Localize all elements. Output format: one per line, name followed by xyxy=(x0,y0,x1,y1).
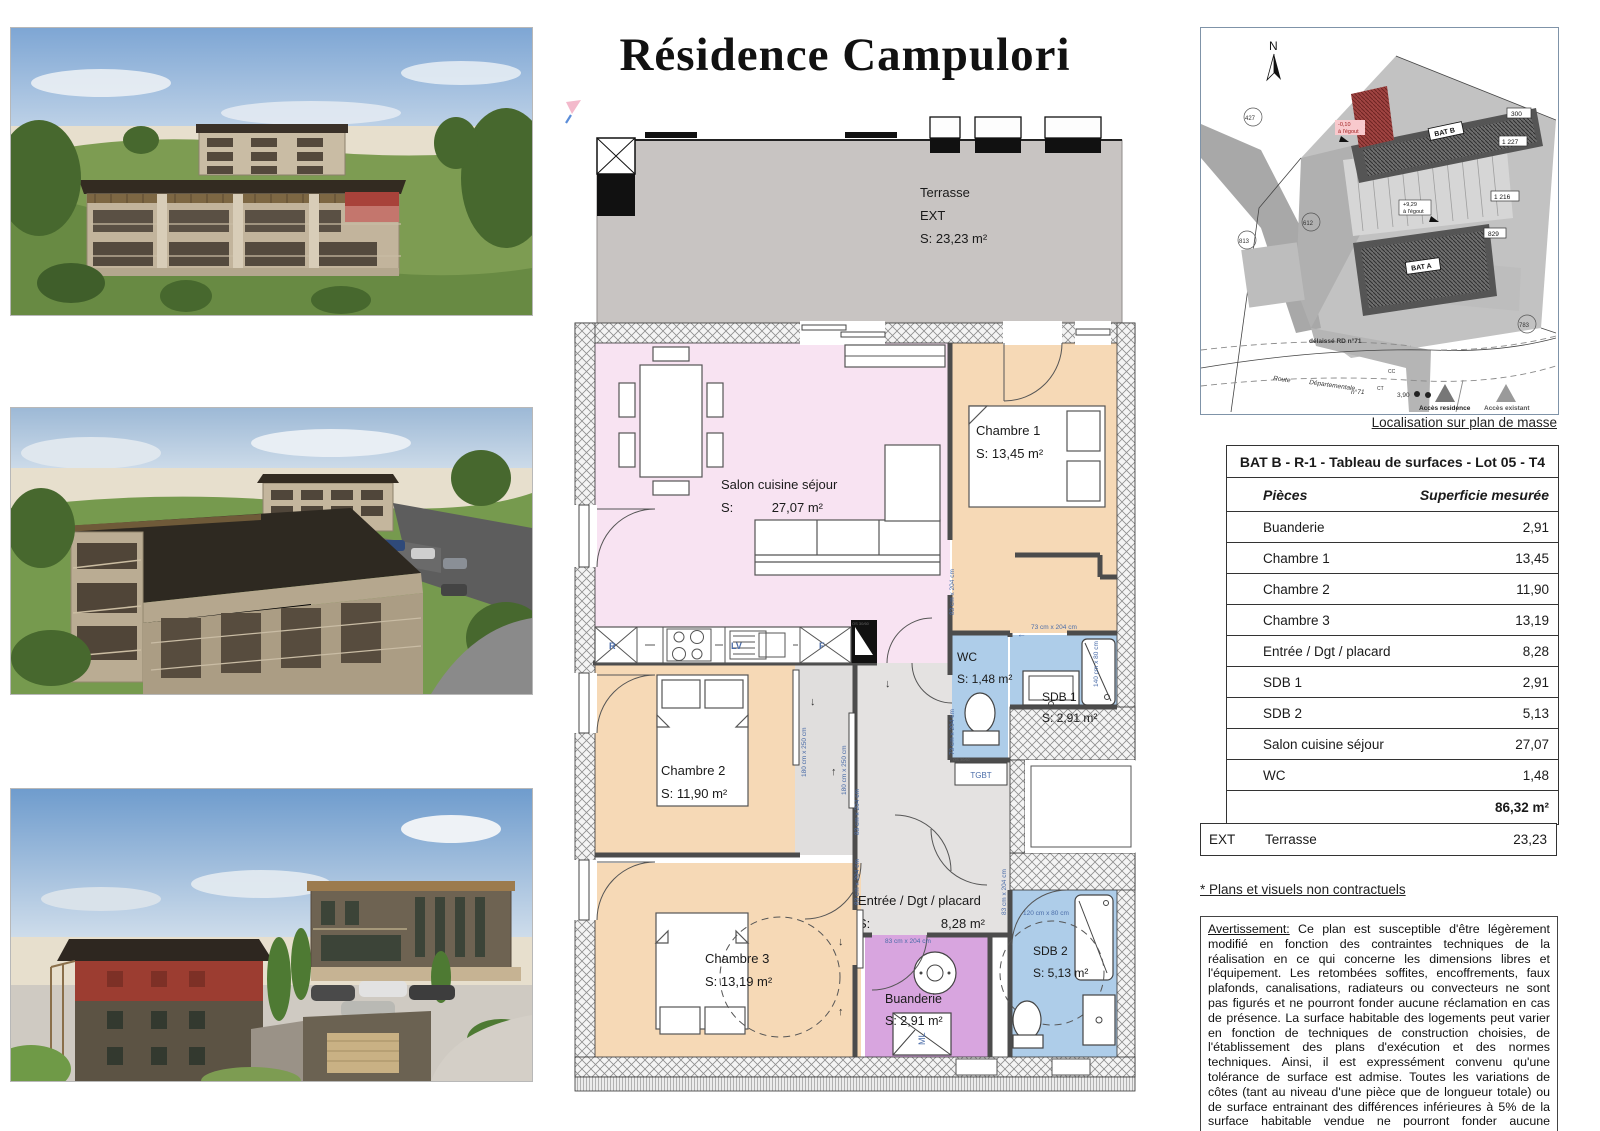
table-header: Pièces Superficie mesurée xyxy=(1227,478,1558,512)
dishwasher-label: LV xyxy=(731,641,742,651)
map-p783: 783 xyxy=(1519,323,1530,329)
sdb2-label: SDB 2 xyxy=(1033,944,1068,958)
map-n1227: 1 227 xyxy=(1502,139,1519,146)
table-row: WC1,48 xyxy=(1227,760,1558,791)
dim-180-2: 180 cm x 250 cm xyxy=(841,746,848,796)
total-surface: 86,32 m² xyxy=(1406,800,1558,815)
non-contractual-note: * Plans et visuels non contractuels xyxy=(1200,882,1406,897)
chambre2-area: S: 11,90 m² xyxy=(661,786,728,801)
col-superficie: Superficie mesurée xyxy=(1406,487,1558,503)
access-existing-arrow xyxy=(1496,384,1516,402)
terrace-area xyxy=(597,140,1122,325)
map-n300: 300 xyxy=(1511,111,1522,118)
sdb2-area: S: 5,13 m² xyxy=(1033,966,1088,980)
chambre1-label: Chambre 1 xyxy=(976,423,1040,438)
table-title: BAT B - R-1 - Tableau de surfaces - Lot … xyxy=(1227,446,1558,478)
warning-lead: Avertissement: xyxy=(1208,922,1290,936)
map-lot-level: -0,10 xyxy=(1338,122,1351,128)
map-acces-res: Accès residence xyxy=(1419,405,1471,412)
wc-label: WC xyxy=(957,650,977,664)
slide-arrow-4: ↑ xyxy=(838,1006,844,1018)
table-row: Salon cuisine séjour27,07 xyxy=(1227,729,1558,760)
oven-label: F xyxy=(819,641,825,651)
site-map: BAT B BAT A 300 1 227 1 216 829 -0,10 à … xyxy=(1201,28,1556,412)
render-exterior-front xyxy=(10,27,533,316)
map-bata-level: +9,29 xyxy=(1403,202,1417,208)
site-map-frame: BAT B BAT A 300 1 227 1 216 829 -0,10 à … xyxy=(1200,27,1559,415)
highlighted-unit xyxy=(345,192,399,206)
map-p427: 427 xyxy=(1245,116,1256,122)
logo-triangle xyxy=(566,100,581,114)
render-exterior-street xyxy=(10,788,533,1082)
chambre3-area: S: 13,19 m² xyxy=(705,974,773,989)
plan-page: Résidence Campulori xyxy=(0,0,1600,1131)
slide-arrow-5: ↓ xyxy=(885,678,891,690)
terrace-ext: EXT xyxy=(920,208,945,223)
map-route2: Départementale xyxy=(1309,379,1356,392)
warning-box: Avertissement: Ce plan est susceptible d… xyxy=(1200,916,1558,1131)
warning-body: Ce plan est susceptible d'être légèremen… xyxy=(1208,922,1550,1131)
table-row: Buanderie2,91 xyxy=(1227,512,1558,543)
os-label-1: OS 30/60 xyxy=(852,621,870,626)
chambre3-label: Chambre 3 xyxy=(705,951,769,966)
tgbt-label: TGBT xyxy=(970,771,991,780)
ext-tag: EXT xyxy=(1201,832,1261,847)
dim-83-5: 83 cm x 204 cm xyxy=(885,938,931,945)
dim-83-3: 83 cm x 204 cm xyxy=(854,859,861,905)
access-residence-arrow xyxy=(1435,384,1455,402)
chambre1-area: S: 13,45 m² xyxy=(976,446,1044,461)
ext-label: Terrasse xyxy=(1261,832,1406,847)
bath-dim: 120 cm x 80 cm xyxy=(1023,910,1069,917)
surfaces-table: BAT B - R-1 - Tableau de surfaces - Lot … xyxy=(1226,445,1559,825)
table-row: SDB 25,13 xyxy=(1227,698,1558,729)
table-ext-row: EXT Terrasse 23,23 xyxy=(1200,823,1557,856)
salon-label: Salon cuisine séjour xyxy=(721,477,838,492)
slide-arrow-1: ↓ xyxy=(810,696,816,708)
slide-arrow-left: ← xyxy=(1017,629,1026,639)
north-arrow-icon: N xyxy=(1267,39,1281,80)
buanderie-area: S: 2,91 m² xyxy=(885,1014,943,1028)
salon-area: 27,07 m² xyxy=(772,500,824,515)
table-total-row: 86,32 m² xyxy=(1227,791,1558,824)
dim-180-1: 180 cm x 250 cm xyxy=(801,728,808,778)
table-row: Chambre 211,90 xyxy=(1227,574,1558,605)
entree-area: 8,28 m² xyxy=(941,916,986,931)
dim-73-h: 73 cm x 204 cm xyxy=(1031,624,1077,631)
map-lot-level2: à l'égout xyxy=(1338,129,1359,135)
map-bata-level2: à l'égout xyxy=(1403,209,1424,215)
dim-73-v: 73 cm x 204 cm xyxy=(949,709,956,755)
os-label-2: OS 30/60 xyxy=(953,757,971,762)
sdb1-area: S: 2,91 m² xyxy=(1042,711,1097,725)
sdb1-label: SDB 1 xyxy=(1042,690,1077,704)
entree-label: Entrée / Dgt / placard xyxy=(858,893,981,908)
floor-plan: Terrasse EXT S: 23,23 m² xyxy=(555,115,1140,1095)
map-north: N xyxy=(1269,39,1278,53)
salon-s: S: xyxy=(721,500,733,515)
map-acces-exi: Accès existant xyxy=(1484,405,1530,412)
col-pieces: Pièces xyxy=(1227,487,1406,503)
dim-83-1: 83 cm x 204 cm xyxy=(949,569,956,615)
map-n829: 829 xyxy=(1488,231,1499,238)
room-entree xyxy=(855,663,952,760)
highlighted-unit-red-band xyxy=(75,961,263,1001)
page-title: Résidence Campulori xyxy=(545,28,1145,82)
map-caption: Localisation sur plan de masse xyxy=(1200,415,1557,430)
map-n1216: 1 216 xyxy=(1494,194,1511,201)
terrace-label: Terrasse xyxy=(920,185,970,200)
dim-83-2: 83 cm x 204 cm xyxy=(854,789,861,835)
map-dim390: 3,90 xyxy=(1397,392,1410,399)
map-ct: CT xyxy=(1377,386,1384,392)
wc-area: S: 1,48 m² xyxy=(957,672,1012,686)
dim-83-4: 83 cm x 204 cm xyxy=(1001,869,1008,915)
map-route3: n°71 xyxy=(1351,388,1365,396)
render-exterior-aerial xyxy=(10,407,533,695)
table-row: Entrée / Dgt / placard8,28 xyxy=(1227,636,1558,667)
map-cc: CC xyxy=(1388,369,1396,375)
fridge-label: R xyxy=(609,641,616,651)
table-row: SDB 12,91 xyxy=(1227,667,1558,698)
ml-label: ML xyxy=(917,1032,927,1045)
table-row: Chambre 113,45 xyxy=(1227,543,1558,574)
table-row: Chambre 313,19 xyxy=(1227,605,1558,636)
ext-value: 23,23 xyxy=(1406,832,1556,847)
map-route1: Route xyxy=(1273,375,1292,384)
chambre2-label: Chambre 2 xyxy=(661,763,725,778)
buanderie-label: Buanderie xyxy=(885,992,942,1006)
terrace-area-label: S: 23,23 m² xyxy=(920,231,988,246)
map-delaisse: délaissé RD n°71 xyxy=(1309,337,1362,345)
map-p813: 813 xyxy=(1239,239,1250,245)
shower-dim: 140 cm x 80 cm xyxy=(1093,641,1100,687)
slide-arrow-2: ↑ xyxy=(831,766,837,778)
map-p612: 612 xyxy=(1303,221,1314,227)
slide-arrow-3: ↓ xyxy=(838,936,844,948)
